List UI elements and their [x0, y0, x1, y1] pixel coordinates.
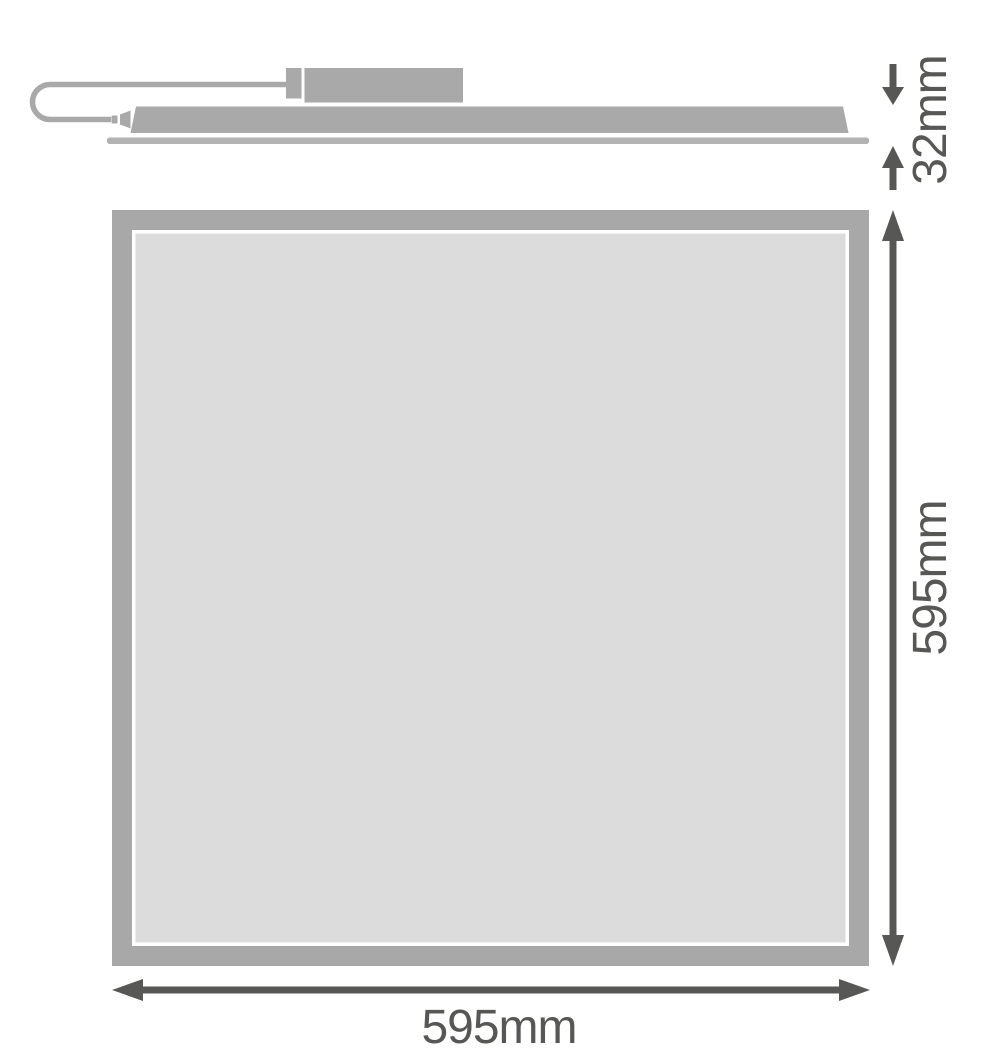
front-view [112, 210, 869, 966]
width-label: 595mm [421, 1001, 576, 1054]
driver-box [305, 68, 464, 103]
panel-flange-side [107, 138, 869, 145]
height-label: 595mm [904, 500, 957, 655]
thickness-dimension: 32mm [882, 55, 957, 190]
arrow-down-icon [882, 64, 904, 105]
double-arrow-vertical-icon [882, 210, 904, 966]
panel-diffuser [136, 234, 846, 943]
cable-plug-small [112, 116, 118, 124]
double-arrow-horizontal-icon [112, 979, 870, 1001]
driver-connector [286, 68, 302, 99]
thickness-label: 32mm [904, 55, 957, 184]
height-dimension: 595mm [882, 210, 957, 966]
width-dimension: 595mm [112, 979, 870, 1054]
cable-plug [120, 111, 131, 129]
arrow-up-icon [882, 146, 904, 190]
panel-body-side [131, 107, 849, 134]
led-panel-dimension-drawing: 32mm 595mm 595mm [0, 0, 1000, 1059]
side-profile-view [33, 68, 870, 144]
